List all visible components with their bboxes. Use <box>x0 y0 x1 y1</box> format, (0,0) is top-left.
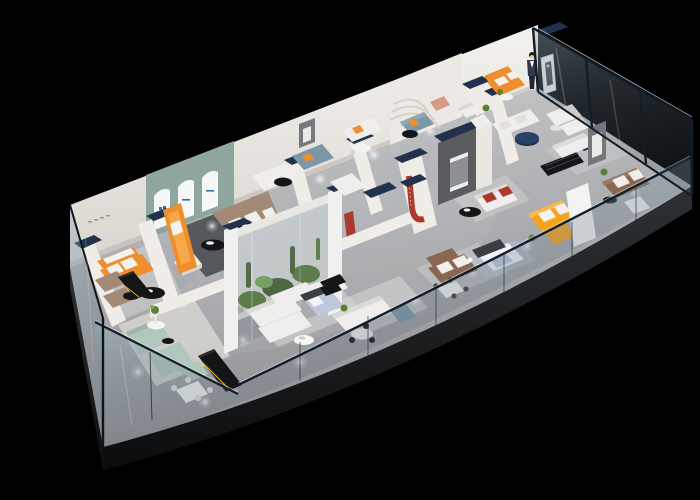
wall-panel-window-pane <box>303 126 311 143</box>
navy-round-table <box>515 132 539 146</box>
render-canvas <box>0 0 700 500</box>
terrarium-frame-left <box>224 224 238 354</box>
floorplan-render <box>0 0 700 500</box>
black-oval-table <box>459 207 481 217</box>
round-coffee-table <box>294 335 314 345</box>
feature-wall-column <box>476 122 492 190</box>
side-table <box>162 338 174 344</box>
